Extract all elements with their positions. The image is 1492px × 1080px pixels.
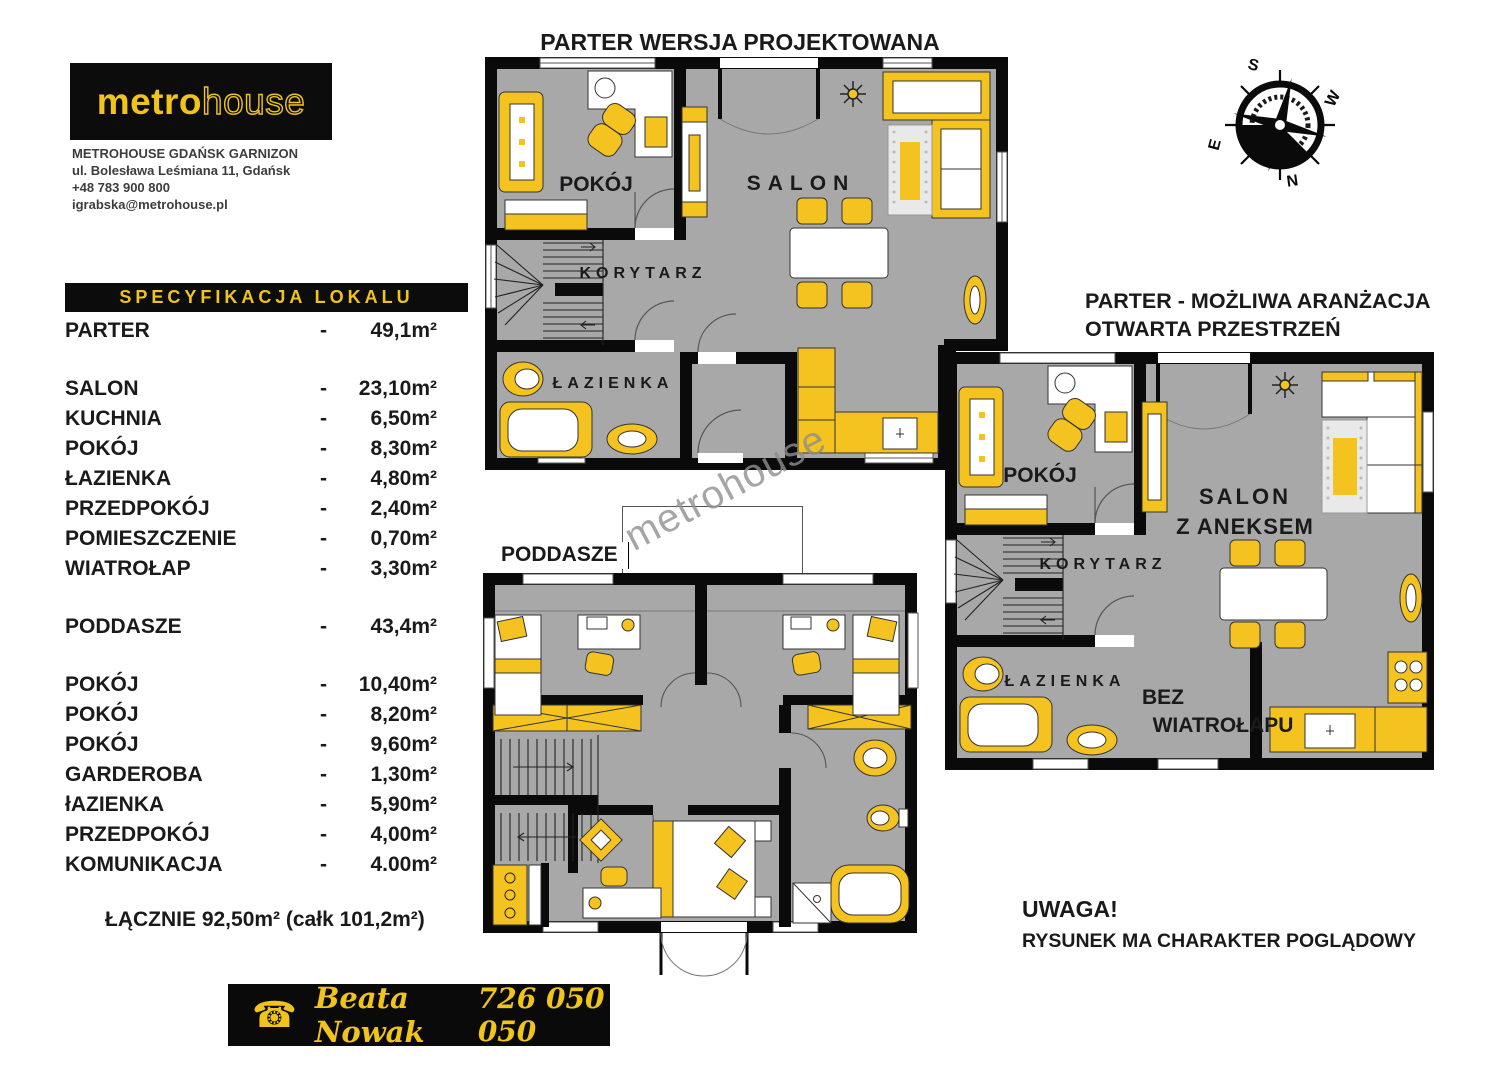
spec-dash: - <box>320 316 342 346</box>
compass-rose-icon: S W E N <box>1206 52 1346 192</box>
logo-text-metro: metro <box>97 81 202 123</box>
spec-dash: - <box>320 730 342 760</box>
spec-room-area: 43,4m² <box>342 612 437 642</box>
spec-row: PRZEDPOKÓJ-2,40m² <box>65 494 437 524</box>
compass-label-e: E <box>1206 137 1225 152</box>
spec-dash: - <box>320 434 342 464</box>
spec-room-label: GARDEROBA <box>65 760 320 790</box>
spec-room-label: PODDASZE <box>65 612 320 642</box>
spec-room-label: SALON <box>65 374 320 404</box>
otwarta-room-pokoj: POKÓJ <box>1003 463 1077 487</box>
compass-label-w: W <box>1322 87 1345 109</box>
spec-row: KOMUNIKACJA-4.00m² <box>65 850 437 880</box>
spec-room-area: 10,40m² <box>342 670 437 700</box>
otwarta-room-salon2: Z ANEKSEM <box>1176 514 1314 539</box>
compass-hub <box>1274 119 1286 131</box>
parter-room-korytarz: KORYTARZ <box>579 265 706 282</box>
plan-parter-title: PARTER WERSJA PROJEKTOWANA <box>530 29 950 56</box>
floorplan-poddasze <box>483 573 923 983</box>
spec-row: WIATROŁAP-3,30m² <box>65 554 437 584</box>
spec-room-area: 4,00m² <box>342 820 437 850</box>
spec-room-area: 8,30m² <box>342 434 437 464</box>
spec-row: łAZIENKA-5,90m² <box>65 790 437 820</box>
compass-label-n: N <box>1285 170 1299 188</box>
otwarta-room-lazienka: ŁAZIENKA <box>1005 673 1126 690</box>
spec-room-area: 9,60m² <box>342 730 437 760</box>
spec-room-label: POKÓJ <box>65 670 320 700</box>
spec-total: ŁĄCZNIE 92,50m² (całk 101,2m²) <box>65 908 437 932</box>
compass-label-s: S <box>1246 56 1261 75</box>
spec-dash: - <box>320 670 342 700</box>
spec-dash: - <box>320 524 342 554</box>
agency-address: ul. Bolesława Leśmiana 11, Gdańsk <box>72 162 372 179</box>
spec-room-area: 5,90m² <box>342 790 437 820</box>
phone-icon: ☎ <box>252 984 297 1046</box>
spec-header: SPECYFIKACJA LOKALU <box>65 283 468 312</box>
spec-room-area: 4,80m² <box>342 464 437 494</box>
logo-text-house: house <box>202 81 305 123</box>
spec-dash: - <box>320 554 342 584</box>
spec-row: POKÓJ-9,60m² <box>65 730 437 760</box>
spec-room-area: 8,20m² <box>342 700 437 730</box>
spec-row: POKÓJ-10,40m² <box>65 670 437 700</box>
spec-dash: - <box>320 464 342 494</box>
spec-row: SALON-23,10m² <box>65 374 437 404</box>
spec-room-label: POMIESZCZENIE <box>65 524 320 554</box>
spec-room-label: ŁAZIENKA <box>65 464 320 494</box>
spec-room-area: 49,1m² <box>342 316 437 346</box>
floorplan-otwarta: POKÓJ SALON Z ANEKSEM KORYTARZ ŁAZIENKA … <box>945 352 1434 770</box>
agency-contact-block: METROHOUSE GDAŃSK GARNIZON ul. Bolesława… <box>72 145 372 213</box>
agent-name: Beata Nowak <box>315 981 460 1049</box>
spec-group-parter: PARTER-49,1m² <box>65 316 437 346</box>
note-uwaga: UWAGA! <box>1022 896 1416 923</box>
spec-list: PARTER-49,1m² SALON-23,10m² KUCHNIA-6,50… <box>65 316 437 932</box>
spec-room-label: PRZEDPOKÓJ <box>65 494 320 524</box>
spec-dash: - <box>320 820 342 850</box>
spec-room-label: POKÓJ <box>65 730 320 760</box>
spec-room-area: 1,30m² <box>342 760 437 790</box>
spec-room-area: 3,30m² <box>342 554 437 584</box>
spec-dash: - <box>320 494 342 524</box>
otwarta-tv-unit <box>1142 402 1167 512</box>
poddasze-bedroom3-furniture <box>580 819 771 918</box>
plan-otwarta-title-line2: OTWARTA PRZESTRZEŃ <box>1085 315 1445 343</box>
spec-dash: - <box>320 850 342 880</box>
spec-dash: - <box>320 700 342 730</box>
spec-row: ŁAZIENKA-4,80m² <box>65 464 437 494</box>
otwarta-room-korytarz: KORYTARZ <box>1039 556 1166 573</box>
spec-room-label: łAZIENKA <box>65 790 320 820</box>
spec-row: KUCHNIA-6,50m² <box>65 404 437 434</box>
parter-room-salon: SALON <box>747 172 856 195</box>
spec-dash: - <box>320 404 342 434</box>
plan-otwarta-title: PARTER - MOŻLIWA ARANŻACJA OTWARTA PRZES… <box>1085 287 1445 343</box>
otwarta-room-bez: BEZ <box>1142 686 1184 709</box>
spec-row: PARTER-49,1m² <box>65 316 437 346</box>
spec-row: PODDASZE-43,4m² <box>65 612 437 642</box>
agency-phone: +48 783 900 800 <box>72 179 372 196</box>
spec-dash: - <box>320 760 342 790</box>
spec-room-area: 4.00m² <box>342 850 437 880</box>
note-text: RYSUNEK MA CHARAKTER POGLĄDOWY <box>1022 930 1416 953</box>
parter-room-lazienka: ŁAZIENKA <box>553 375 674 392</box>
plan-otwarta-title-line1: PARTER - MOŻLIWA ARANŻACJA <box>1085 287 1445 315</box>
spec-group-poddasze-rooms: POKÓJ-10,40m² POKÓJ-8,20m² POKÓJ-9,60m² … <box>65 670 437 880</box>
spec-room-area: 0,70m² <box>342 524 437 554</box>
spec-dash: - <box>320 790 342 820</box>
spec-room-label: KOMUNIKACJA <box>65 850 320 880</box>
spec-group-parter-rooms: SALON-23,10m² KUCHNIA-6,50m² POKÓJ-8,30m… <box>65 374 437 584</box>
agency-logo: metrohouse <box>70 63 332 140</box>
agent-phone-number: 726 050 050 <box>478 982 610 1048</box>
spec-room-label: PARTER <box>65 316 320 346</box>
spec-dash: - <box>320 374 342 404</box>
poddasze-shelves <box>493 865 541 925</box>
spec-row: POMIESZCZENIE-0,70m² <box>65 524 437 554</box>
otwarta-room-wiatrolapu: WIATROŁAPU <box>1153 714 1294 737</box>
spec-room-label: KUCHNIA <box>65 404 320 434</box>
spec-row: PRZEDPOKÓJ-4,00m² <box>65 820 437 850</box>
spec-row: GARDEROBA-1,30m² <box>65 760 437 790</box>
spec-dash: - <box>320 612 342 642</box>
floorplan-parter: POKÓJ SALON KORYTARZ ŁAZIENKA <box>485 57 1008 470</box>
spec-room-label: PRZEDPOKÓJ <box>65 820 320 850</box>
spec-row: POKÓJ-8,30m² <box>65 434 437 464</box>
spec-room-label: POKÓJ <box>65 700 320 730</box>
spec-room-label: POKÓJ <box>65 434 320 464</box>
otwarta-room-salon1: SALON <box>1199 484 1291 509</box>
spec-room-area: 6,50m² <box>342 404 437 434</box>
agent-contact-banner: ☎ Beata Nowak 726 050 050 <box>228 984 610 1046</box>
agency-email: igrabska@metrohouse.pl <box>72 196 372 213</box>
spec-room-label: WIATROŁAP <box>65 554 320 584</box>
spec-room-area: 23,10m² <box>342 374 437 404</box>
parter-room-pokoj: POKÓJ <box>559 172 633 196</box>
plan-poddasze-title: PODDASZE <box>497 542 629 569</box>
spec-room-area: 2,40m² <box>342 494 437 524</box>
poddasze-bottom-door <box>661 922 747 976</box>
agency-office-name: METROHOUSE GDAŃSK GARNIZON <box>72 145 372 162</box>
poddasze-stairs <box>495 735 598 863</box>
disclaimer-note: UWAGA! RYSUNEK MA CHARAKTER POGLĄDOWY <box>1022 896 1416 953</box>
spec-row: POKÓJ-8,20m² <box>65 700 437 730</box>
spec-group-poddasze: PODDASZE-43,4m² <box>65 612 437 642</box>
